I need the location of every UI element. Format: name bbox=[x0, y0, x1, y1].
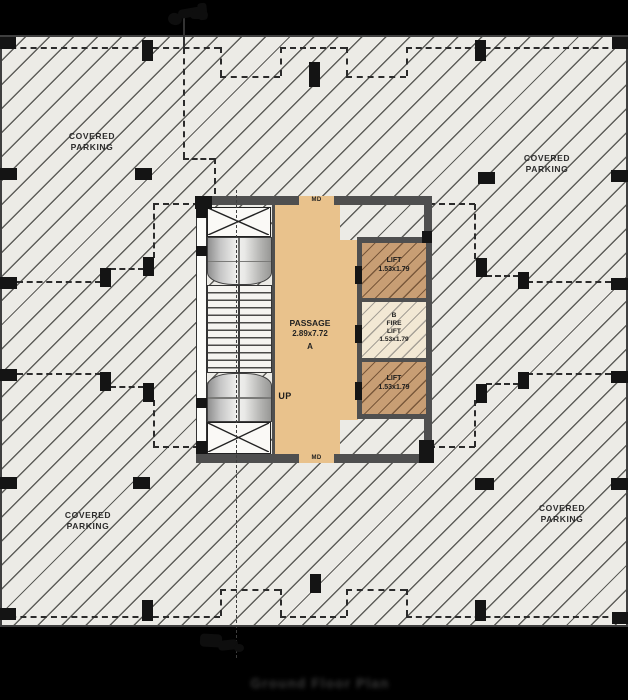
dashed-boundary-segment bbox=[280, 47, 346, 49]
core-clearance-dashed bbox=[429, 446, 475, 448]
covered-parking-label-top-left: COVERED PARKING bbox=[50, 131, 134, 153]
lift-bottom-dims: 1.53x1.79 bbox=[362, 383, 426, 392]
fire-lift-zone: B bbox=[362, 312, 426, 320]
column-marker bbox=[611, 478, 628, 490]
parking-line1: COVERED bbox=[50, 131, 134, 142]
dashed-boundary-segment bbox=[220, 589, 280, 591]
column-marker bbox=[143, 383, 154, 402]
column-marker bbox=[133, 477, 150, 489]
dashed-boundary-segment bbox=[346, 76, 406, 78]
grid-dashed-line bbox=[17, 373, 101, 375]
dashed-boundary-segment bbox=[406, 616, 628, 618]
dashed-boundary-segment bbox=[220, 47, 222, 76]
dashed-boundary-segment bbox=[346, 589, 406, 591]
shaft-cross-box bbox=[207, 422, 271, 454]
grid-dashed-line bbox=[527, 281, 611, 283]
column-marker bbox=[0, 277, 17, 289]
lift-door-jamb bbox=[355, 266, 362, 284]
parking-line1: COVERED bbox=[520, 503, 604, 514]
column-marker bbox=[476, 258, 487, 277]
column-marker bbox=[478, 172, 495, 184]
up-label: UP bbox=[272, 391, 298, 401]
dashed-boundary-segment bbox=[280, 616, 346, 618]
lift-top-title: LIFT bbox=[362, 256, 426, 265]
core-clearance-dashed bbox=[429, 203, 475, 205]
fire-lift-line1: FIRE bbox=[362, 320, 426, 328]
wall-block bbox=[196, 206, 207, 218]
dashed-boundary-segment bbox=[406, 47, 408, 76]
column-marker bbox=[0, 168, 17, 180]
column-marker bbox=[611, 170, 628, 182]
dashed-boundary-segment bbox=[406, 47, 628, 49]
lift-door-jamb bbox=[355, 325, 362, 343]
parking-line2: PARKING bbox=[520, 514, 604, 525]
column-marker bbox=[142, 600, 153, 621]
wall-block bbox=[422, 231, 432, 243]
dashed-boundary-segment bbox=[220, 589, 222, 616]
column-marker bbox=[100, 268, 111, 287]
grid-dashed-line bbox=[183, 48, 185, 158]
shaft-cross-box bbox=[207, 207, 271, 237]
dashed-boundary-segment bbox=[346, 47, 348, 76]
section-line bbox=[236, 190, 237, 658]
column-marker bbox=[0, 37, 16, 49]
lift-door-jamb bbox=[355, 382, 362, 400]
main-door-bottom-label: MD bbox=[299, 454, 334, 463]
column-marker bbox=[518, 272, 529, 289]
covered-parking-label-bottom-left: COVERED PARKING bbox=[46, 510, 130, 532]
lift-top-label: LIFT 1.53x1.79 bbox=[362, 256, 426, 274]
dashed-boundary-segment bbox=[406, 589, 408, 616]
dashed-boundary-segment bbox=[0, 616, 220, 618]
dashed-boundary-segment bbox=[280, 47, 282, 76]
parking-line2: PARKING bbox=[50, 142, 134, 153]
passage-label: PASSAGE 2.89x7.72 A bbox=[280, 318, 340, 353]
covered-parking-label-top-right: COVERED PARKING bbox=[505, 153, 589, 175]
column-marker bbox=[0, 608, 16, 620]
cross-lines-icon bbox=[208, 423, 269, 452]
lift-top-dims: 1.53x1.79 bbox=[362, 265, 426, 274]
covered-parking-label-bottom-right: COVERED PARKING bbox=[520, 503, 604, 525]
grid-dashed-line bbox=[17, 281, 101, 283]
passage-title: PASSAGE bbox=[280, 318, 340, 329]
passage-zone: A bbox=[280, 342, 340, 352]
parking-line1: COVERED bbox=[46, 510, 130, 521]
wall-block bbox=[196, 246, 207, 256]
column-marker bbox=[0, 369, 17, 381]
section-line bbox=[183, 18, 185, 48]
column-marker bbox=[135, 168, 152, 180]
wall-block bbox=[419, 440, 434, 463]
column-marker bbox=[612, 612, 628, 624]
core-clearance-dashed bbox=[474, 204, 476, 259]
main-door-top: MD bbox=[299, 196, 334, 205]
dashed-boundary-segment bbox=[0, 47, 220, 49]
column-marker bbox=[611, 371, 628, 383]
column-marker bbox=[142, 40, 153, 61]
fire-lift-dims: 1.53x1.79 bbox=[362, 336, 426, 344]
column-marker bbox=[143, 257, 154, 276]
column-marker bbox=[611, 278, 628, 290]
dashed-boundary-segment bbox=[220, 76, 280, 78]
column-marker bbox=[309, 62, 320, 87]
core-clearance-dashed bbox=[153, 204, 155, 258]
lift-bottom-title: LIFT bbox=[362, 374, 426, 383]
parking-line1: COVERED bbox=[505, 153, 589, 164]
wall-block bbox=[196, 441, 207, 454]
fire-lift-line2: LIFT bbox=[362, 328, 426, 336]
core-clearance-dashed bbox=[153, 446, 199, 448]
staircase-treads bbox=[207, 285, 272, 373]
parking-line2: PARKING bbox=[505, 164, 589, 175]
dashed-boundary-segment bbox=[346, 589, 348, 616]
column-marker bbox=[100, 372, 111, 391]
main-door-bottom: MD bbox=[299, 454, 334, 463]
stair-flight-shaded bbox=[207, 237, 272, 285]
passage-dims: 2.89x7.72 bbox=[280, 329, 340, 339]
drawing-caption: Ground Floor Plan bbox=[210, 676, 430, 691]
core-wall-left bbox=[196, 205, 207, 454]
lift-bottom-label: LIFT 1.53x1.79 bbox=[362, 374, 426, 392]
main-door-top-label: MD bbox=[299, 196, 334, 205]
wall-block bbox=[196, 398, 207, 408]
floor-plan-scan: MD MD PASSAGE 2.89x7. bbox=[0, 0, 628, 700]
grid-dashed-line bbox=[486, 383, 519, 385]
parking-line2: PARKING bbox=[46, 521, 130, 532]
column-marker bbox=[0, 477, 17, 489]
cross-lines-icon bbox=[208, 208, 269, 235]
grid-dashed-line bbox=[110, 268, 144, 270]
grid-dashed-line bbox=[110, 386, 144, 388]
column-marker bbox=[475, 478, 494, 490]
column-marker bbox=[612, 37, 628, 49]
fire-lift-label: B FIRE LIFT 1.53x1.79 bbox=[362, 312, 426, 344]
core-clearance-dashed bbox=[153, 400, 155, 447]
core-clearance-dashed bbox=[474, 400, 476, 447]
stair-flight-shaded bbox=[207, 373, 272, 422]
column-marker bbox=[475, 40, 486, 61]
column-marker bbox=[476, 384, 487, 403]
grid-dashed-line bbox=[183, 158, 215, 160]
grid-dashed-line bbox=[486, 275, 519, 277]
core-clearance-dashed bbox=[153, 203, 199, 205]
column-marker bbox=[475, 600, 486, 621]
dashed-boundary-segment bbox=[280, 589, 282, 616]
column-marker bbox=[310, 574, 321, 593]
grid-dashed-line bbox=[527, 373, 611, 375]
column-marker bbox=[518, 372, 529, 389]
